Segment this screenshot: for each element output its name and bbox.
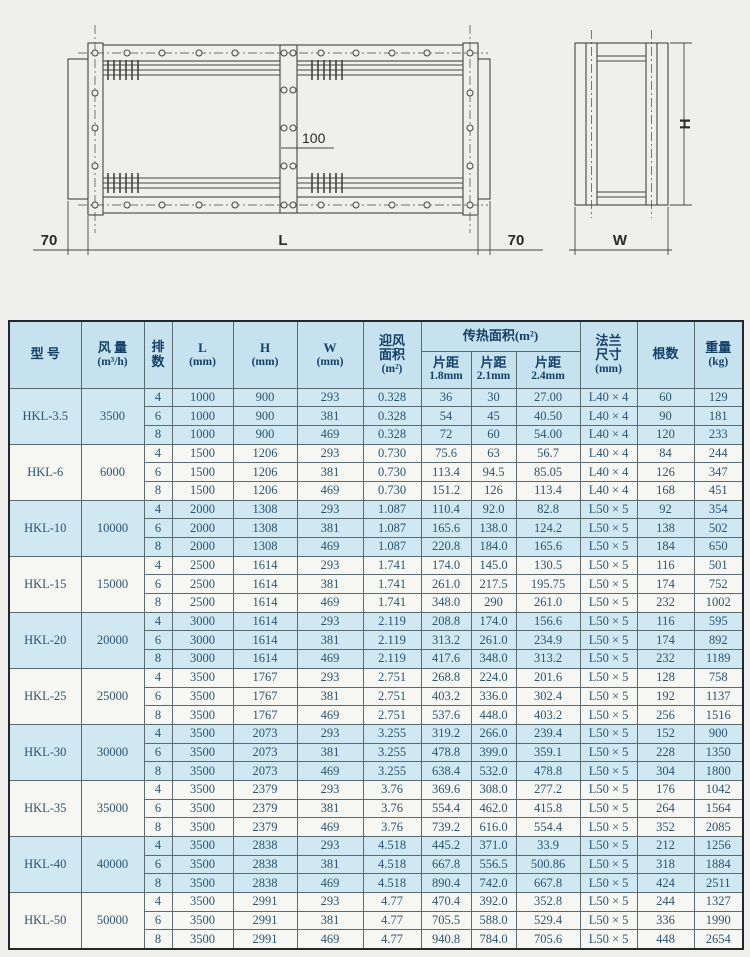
cell-flange: L40 × 4 [580,407,637,426]
cell-row-count: 4 [144,724,172,743]
cell-flange: L40 × 4 [580,463,637,482]
cell-air-volume: 35000 [81,780,144,836]
table-row: HKL-20200004300016142932.119208.8174.015… [9,612,743,631]
cell-face-area: 3.76 [363,818,421,837]
cell-height: 1767 [233,706,297,725]
cell-tube-count: 448 [637,930,694,949]
cell-width: 469 [297,594,363,613]
cell-width: 381 [297,519,363,538]
cell-pitch-2.1: 45 [471,407,516,426]
cell-pitch-2.4: 33.9 [516,837,580,856]
cell-pitch-2.4: 56.7 [516,444,580,463]
cell-model: HKL-50 [9,893,81,949]
cell-model: HKL-35 [9,780,81,836]
cell-weight: 2654 [694,930,743,949]
cell-pitch-2.4: 500.86 [516,855,580,874]
cell-face-area: 3.255 [363,743,421,762]
cell-pitch-2.1: 448.0 [471,706,516,725]
spec-table: 型 号 风 量 (m³/h) 排 数 L (mm) H (mm) [8,320,744,950]
cell-pitch-2.1: 224.0 [471,668,516,687]
cell-width: 381 [297,575,363,594]
cell-height: 2838 [233,837,297,856]
cell-pitch-1.8: 268.8 [421,668,471,687]
cell-pitch-2.1: 532.0 [471,762,516,781]
cell-flange: L50 × 5 [580,893,637,912]
cell-tube-count: 212 [637,837,694,856]
cell-width: 469 [297,930,363,949]
cell-pitch-2.4: 82.8 [516,500,580,519]
header-air-volume: 风 量 (m³/h) [81,321,144,388]
cell-pitch-2.4: 124.2 [516,519,580,538]
cell-pitch-2.4: 478.8 [516,762,580,781]
cell-pitch-1.8: 72 [421,425,471,444]
cell-face-area: 1.087 [363,519,421,538]
cell-tube-count: 60 [637,388,694,407]
dim-label-L: L [278,232,287,249]
cell-row-count: 8 [144,874,172,893]
cell-height: 1614 [233,650,297,669]
cell-height: 1206 [233,481,297,500]
cell-pitch-2.4: 85.05 [516,463,580,482]
cell-face-area: 4.518 [363,837,421,856]
cell-pitch-1.8: 110.4 [421,500,471,519]
cell-row-count: 4 [144,500,172,519]
cell-length: 3500 [172,762,233,781]
cell-width: 381 [297,743,363,762]
cell-tube-count: 120 [637,425,694,444]
header-face-area-line1: 迎风 [364,334,421,349]
dim-label-100: 100 [302,130,326,146]
cell-length: 1000 [172,425,233,444]
cell-pitch-2.1: 784.0 [471,930,516,949]
cell-row-count: 6 [144,519,172,538]
header-pitch-2.1-label: 片距 [472,356,516,371]
cell-weight: 595 [694,612,743,631]
cell-flange: L50 × 5 [580,687,637,706]
cell-pitch-2.4: 195.75 [516,575,580,594]
cell-weight: 2511 [694,874,743,893]
cell-tube-count: 424 [637,874,694,893]
cell-weight: 181 [694,407,743,426]
cell-height: 1767 [233,687,297,706]
cell-flange: L50 × 5 [580,668,637,687]
cell-pitch-2.1: 399.0 [471,743,516,762]
cell-pitch-1.8: 705.5 [421,911,471,930]
cell-pitch-2.4: 27.00 [516,388,580,407]
header-height-unit: (mm) [234,356,297,369]
header-flange-line2: 尺寸 [581,348,637,363]
cell-flange: L50 × 5 [580,855,637,874]
header-row-count: 排 数 [144,321,172,388]
cell-height: 1308 [233,500,297,519]
cell-flange: L40 × 4 [580,425,637,444]
cell-row-count: 4 [144,780,172,799]
cell-tube-count: 228 [637,743,694,762]
cell-face-area: 0.328 [363,425,421,444]
cell-length: 2500 [172,556,233,575]
cell-model: HKL-25 [9,668,81,724]
cell-flange: L40 × 4 [580,388,637,407]
cell-row-count: 6 [144,463,172,482]
cell-height: 2379 [233,799,297,818]
header-weight: 重量 (kg) [694,321,743,388]
cell-pitch-1.8: 165.6 [421,519,471,538]
cell-face-area: 0.730 [363,463,421,482]
cell-weight: 233 [694,425,743,444]
cell-tube-count: 336 [637,911,694,930]
header-pitch-1.8-value: 1.8mm [422,370,471,383]
cell-row-count: 4 [144,388,172,407]
header-air-volume-label: 风 量 [82,341,144,356]
header-pitch-1.8-label: 片距 [422,356,471,371]
cell-air-volume: 10000 [81,500,144,556]
table-row: HKL-15150004250016142931.741174.0145.013… [9,556,743,575]
cell-pitch-1.8: 261.0 [421,575,471,594]
cell-face-area: 3.255 [363,762,421,781]
cell-weight: 501 [694,556,743,575]
cell-pitch-2.1: 145.0 [471,556,516,575]
dim-label-70-right: 70 [508,232,525,249]
cell-length: 3500 [172,724,233,743]
cell-face-area: 4.518 [363,855,421,874]
cell-model: HKL-30 [9,724,81,780]
cell-pitch-1.8: 208.8 [421,612,471,631]
cell-width: 381 [297,631,363,650]
cell-air-volume: 20000 [81,612,144,668]
cell-weight: 2085 [694,818,743,837]
cell-pitch-1.8: 75.6 [421,444,471,463]
cell-pitch-2.1: 336.0 [471,687,516,706]
header-length-label: L [173,341,233,356]
cell-flange: L50 × 5 [580,743,637,762]
cell-pitch-2.1: 290 [471,594,516,613]
cell-length: 3500 [172,911,233,930]
cell-row-count: 4 [144,837,172,856]
cell-width: 293 [297,612,363,631]
cell-pitch-1.8: 403.2 [421,687,471,706]
cell-pitch-1.8: 890.4 [421,874,471,893]
cell-height: 1614 [233,575,297,594]
cell-pitch-1.8: 54 [421,407,471,426]
cell-length: 3500 [172,930,233,949]
cell-tube-count: 184 [637,538,694,557]
cell-length: 3000 [172,612,233,631]
cell-face-area: 2.119 [363,612,421,631]
cell-model: HKL-10 [9,500,81,556]
cell-pitch-1.8: 470.4 [421,893,471,912]
spec-table-container: 型 号 风 量 (m³/h) 排 数 L (mm) H (mm) [8,320,744,950]
cell-length: 3500 [172,706,233,725]
cell-width: 293 [297,444,363,463]
cell-width: 293 [297,668,363,687]
cell-row-count: 8 [144,481,172,500]
cell-height: 2073 [233,743,297,762]
cell-length: 3500 [172,837,233,856]
cell-row-count: 8 [144,706,172,725]
cell-pitch-2.4: 165.6 [516,538,580,557]
cell-air-volume: 50000 [81,893,144,949]
header-heat-area-group: 传热面积(m²) [421,321,580,351]
cell-flange: L50 × 5 [580,818,637,837]
cell-model: HKL-15 [9,556,81,612]
cell-pitch-2.1: 138.0 [471,519,516,538]
cell-model: HKL-6 [9,444,81,500]
cell-face-area: 2.751 [363,706,421,725]
cell-flange: L50 × 5 [580,930,637,949]
cell-weight: 892 [694,631,743,650]
cell-weight: 1042 [694,780,743,799]
cell-row-count: 8 [144,762,172,781]
cell-tube-count: 128 [637,668,694,687]
cell-length: 1000 [172,388,233,407]
cell-length: 3500 [172,668,233,687]
header-row-count-line1: 排 [145,340,172,355]
cell-air-volume: 15000 [81,556,144,612]
cell-height: 1767 [233,668,297,687]
cell-pitch-1.8: 445.2 [421,837,471,856]
cell-weight: 650 [694,538,743,557]
cell-pitch-1.8: 739.2 [421,818,471,837]
cell-width: 469 [297,481,363,500]
cell-row-count: 8 [144,425,172,444]
technical-drawing: 70 L 70 100 H W [0,0,750,310]
cell-face-area: 0.328 [363,407,421,426]
cell-flange: L40 × 4 [580,481,637,500]
cell-flange: L50 × 5 [580,911,637,930]
cell-pitch-2.4: 234.9 [516,631,580,650]
cell-pitch-1.8: 36 [421,388,471,407]
cell-face-area: 1.087 [363,500,421,519]
cell-pitch-2.4: 352.8 [516,893,580,912]
cell-row-count: 4 [144,668,172,687]
cell-pitch-2.1: 556.5 [471,855,516,874]
cell-length: 3500 [172,874,233,893]
cell-weight: 1137 [694,687,743,706]
header-pitch-1.8: 片距 1.8mm [421,351,471,388]
cell-weight: 1564 [694,799,743,818]
cell-width: 293 [297,893,363,912]
cell-row-count: 6 [144,687,172,706]
cell-width: 469 [297,538,363,557]
cell-pitch-2.1: 392.0 [471,893,516,912]
cell-tube-count: 138 [637,519,694,538]
cell-flange: L50 × 5 [580,799,637,818]
cell-face-area: 3.76 [363,780,421,799]
cell-tube-count: 92 [637,500,694,519]
cell-flange: L50 × 5 [580,706,637,725]
cell-height: 2838 [233,874,297,893]
cell-length: 3500 [172,818,233,837]
spec-table-header: 型 号 风 量 (m³/h) 排 数 L (mm) H (mm) [9,321,743,388]
cell-width: 293 [297,556,363,575]
cell-width: 381 [297,687,363,706]
cell-width: 293 [297,388,363,407]
cell-pitch-1.8: 940.8 [421,930,471,949]
cell-face-area: 2.119 [363,650,421,669]
front-view [33,25,543,255]
header-row-count-line2: 数 [145,355,172,370]
cell-face-area: 2.751 [363,687,421,706]
cell-air-volume: 25000 [81,668,144,724]
cell-pitch-2.1: 92.0 [471,500,516,519]
cell-length: 3000 [172,631,233,650]
cell-row-count: 8 [144,538,172,557]
header-pitch-2.4-value: 2.4mm [517,370,580,383]
cell-length: 2000 [172,519,233,538]
cell-model: HKL-3.5 [9,388,81,444]
cell-weight: 451 [694,481,743,500]
cell-weight: 1350 [694,743,743,762]
table-row: HKL-660004150012062930.73075.66356.7L40 … [9,444,743,463]
cell-flange: L50 × 5 [580,631,637,650]
side-centerlines [592,30,652,218]
cell-model: HKL-40 [9,837,81,893]
cell-row-count: 6 [144,407,172,426]
cell-face-area: 2.751 [363,668,421,687]
cell-row-count: 6 [144,575,172,594]
cell-row-count: 6 [144,911,172,930]
cell-flange: L50 × 5 [580,650,637,669]
cell-pitch-1.8: 319.2 [421,724,471,743]
header-face-area: 迎风 面积 (m²) [363,321,421,388]
cell-height: 2073 [233,724,297,743]
cell-pitch-2.4: 313.2 [516,650,580,669]
cell-pitch-2.1: 184.0 [471,538,516,557]
header-weight-label: 重量 [695,341,743,356]
header-pitch-2.4: 片距 2.4mm [516,351,580,388]
header-tube-count: 根数 [637,321,694,388]
cell-flange: L50 × 5 [580,575,637,594]
cell-height: 2991 [233,911,297,930]
cell-pitch-2.4: 302.4 [516,687,580,706]
cell-length: 3500 [172,855,233,874]
cell-flange: L50 × 5 [580,762,637,781]
cell-width: 469 [297,425,363,444]
cell-pitch-2.1: 266.0 [471,724,516,743]
cell-width: 469 [297,818,363,837]
cell-weight: 347 [694,463,743,482]
cell-pitch-1.8: 554.4 [421,799,471,818]
cell-tube-count: 90 [637,407,694,426]
cell-weight: 1990 [694,911,743,930]
cell-pitch-1.8: 369.6 [421,780,471,799]
cell-weight: 1256 [694,837,743,856]
cell-width: 293 [297,724,363,743]
cell-height: 1308 [233,538,297,557]
cell-pitch-2.4: 113.4 [516,481,580,500]
cell-row-count: 8 [144,930,172,949]
cell-flange: L50 × 5 [580,780,637,799]
cell-face-area: 3.76 [363,799,421,818]
cell-tube-count: 352 [637,818,694,837]
table-row: HKL-40400004350028382934.518445.2371.033… [9,837,743,856]
cell-pitch-1.8: 638.4 [421,762,471,781]
cell-face-area: 1.741 [363,594,421,613]
cell-pitch-2.1: 462.0 [471,799,516,818]
table-row: HKL-25250004350017672932.751268.8224.020… [9,668,743,687]
header-length: L (mm) [172,321,233,388]
cell-tube-count: 174 [637,631,694,650]
cell-height: 900 [233,407,297,426]
cell-row-count: 6 [144,743,172,762]
spec-table-body: HKL-3.53500410009002930.328363027.00L40 … [9,388,743,949]
cell-width: 469 [297,706,363,725]
cell-height: 900 [233,425,297,444]
cell-length: 1500 [172,481,233,500]
cell-height: 2838 [233,855,297,874]
fin-hatch-marks [108,60,342,193]
cell-tube-count: 116 [637,612,694,631]
cell-tube-count: 256 [637,706,694,725]
cell-tube-count: 304 [637,762,694,781]
cell-flange: L50 × 5 [580,538,637,557]
cell-weight: 502 [694,519,743,538]
cell-pitch-1.8: 667.8 [421,855,471,874]
cell-weight: 1800 [694,762,743,781]
cell-tube-count: 318 [637,855,694,874]
cell-pitch-2.4: 239.4 [516,724,580,743]
cell-weight: 758 [694,668,743,687]
header-height: H (mm) [233,321,297,388]
cell-height: 2379 [233,780,297,799]
cell-row-count: 8 [144,818,172,837]
side-outline [575,43,668,205]
cell-pitch-1.8: 174.0 [421,556,471,575]
cell-row-count: 6 [144,799,172,818]
cell-tube-count: 152 [637,724,694,743]
cell-height: 900 [233,388,297,407]
cell-pitch-1.8: 220.8 [421,538,471,557]
cell-weight: 244 [694,444,743,463]
cell-pitch-2.4: 667.8 [516,874,580,893]
cell-pitch-2.4: 54.00 [516,425,580,444]
cell-row-count: 4 [144,556,172,575]
cell-pitch-2.1: 261.0 [471,631,516,650]
header-height-label: H [234,341,297,356]
cell-length: 2500 [172,594,233,613]
cell-flange: L50 × 5 [580,874,637,893]
cell-tube-count: 84 [637,444,694,463]
cell-weight: 752 [694,575,743,594]
cell-pitch-2.4: 261.0 [516,594,580,613]
cell-height: 1614 [233,556,297,575]
cell-pitch-2.4: 40.50 [516,407,580,426]
cell-row-count: 4 [144,612,172,631]
cell-face-area: 4.518 [363,874,421,893]
cell-face-area: 0.730 [363,481,421,500]
cell-width: 469 [297,650,363,669]
cell-tube-count: 116 [637,556,694,575]
cell-pitch-2.1: 94.5 [471,463,516,482]
cell-width: 469 [297,762,363,781]
cell-tube-count: 264 [637,799,694,818]
table-row: HKL-35350004350023792933.76369.6308.0277… [9,780,743,799]
cell-pitch-2.1: 174.0 [471,612,516,631]
cell-height: 1614 [233,631,297,650]
cell-tube-count: 232 [637,650,694,669]
cell-pitch-1.8: 537.6 [421,706,471,725]
header-flange-unit: (mm) [581,363,637,376]
cell-height: 2991 [233,893,297,912]
cell-weight: 1327 [694,893,743,912]
cell-pitch-1.8: 478.8 [421,743,471,762]
cell-pitch-2.4: 403.2 [516,706,580,725]
table-row: HKL-3.53500410009002930.328363027.00L40 … [9,388,743,407]
cell-air-volume: 3500 [81,388,144,444]
cell-weight: 129 [694,388,743,407]
cell-width: 293 [297,837,363,856]
cell-face-area: 1.741 [363,575,421,594]
